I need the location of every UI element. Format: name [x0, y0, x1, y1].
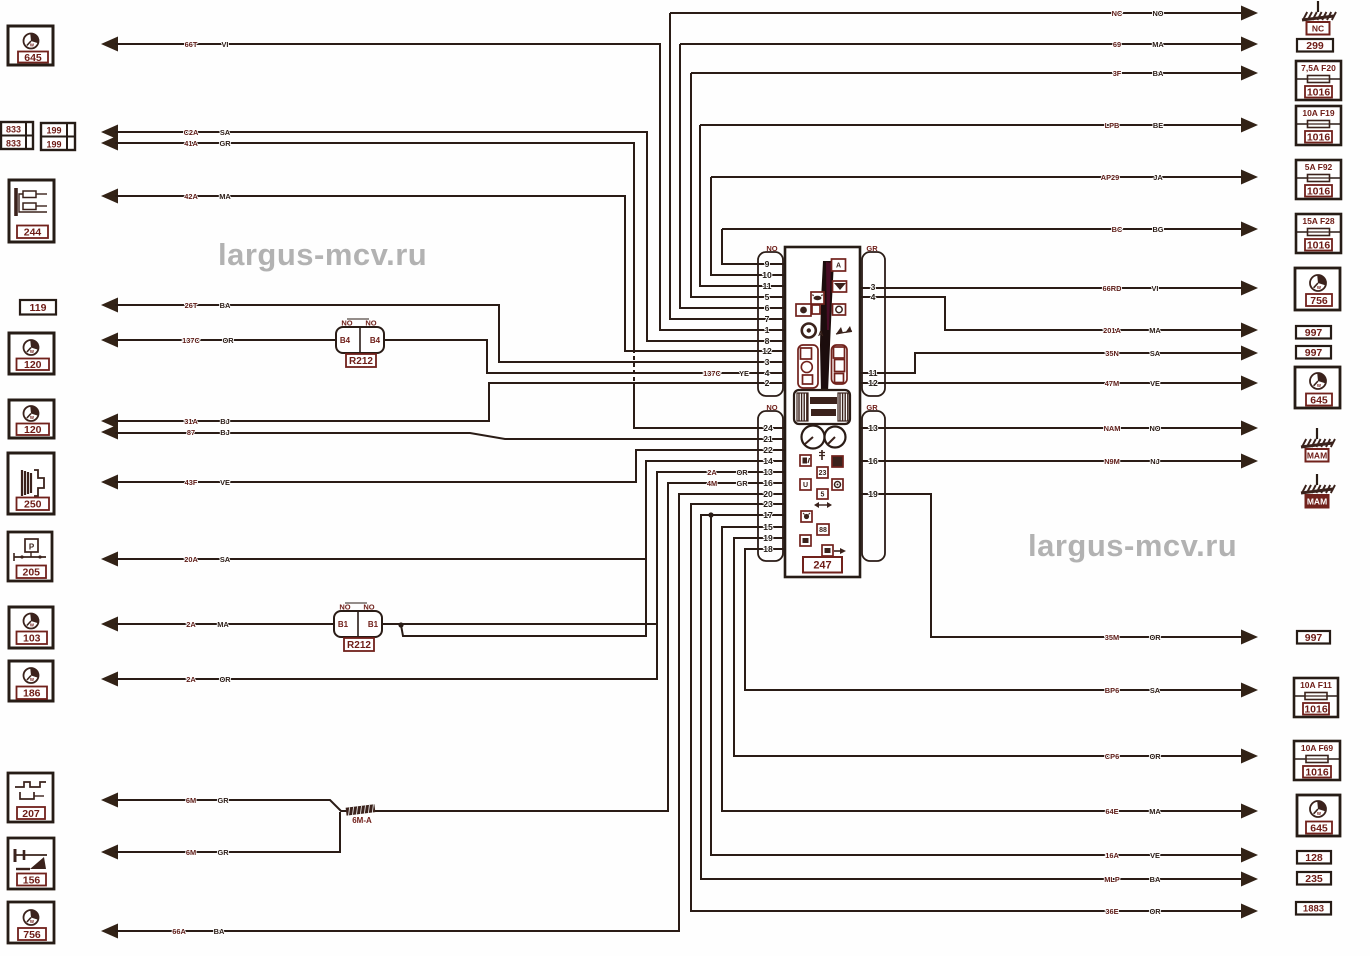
svg-text:GR: GR [217, 848, 229, 857]
svg-text:BJ: BJ [220, 428, 229, 437]
svg-text:3F: 3F [1113, 69, 1122, 78]
svg-text:12: 12 [868, 378, 878, 388]
svg-text:22: 22 [763, 445, 773, 455]
svg-text:137C: 137C [703, 369, 721, 378]
svg-text:4M: 4M [707, 479, 717, 488]
svg-text:1016: 1016 [1304, 704, 1328, 716]
svg-text:23: 23 [819, 470, 827, 477]
svg-text:SA: SA [1150, 349, 1161, 358]
svg-text:645: 645 [24, 52, 42, 64]
svg-text:199: 199 [46, 126, 61, 136]
svg-text:199: 199 [46, 140, 61, 150]
svg-text:BA: BA [214, 927, 225, 936]
svg-text:2A: 2A [186, 620, 196, 629]
svg-text:6M: 6M [186, 796, 196, 805]
svg-text:201A: 201A [1103, 326, 1121, 335]
svg-text:250: 250 [24, 499, 42, 511]
svg-text:833: 833 [6, 125, 21, 135]
svg-text:186: 186 [23, 688, 41, 700]
svg-text:128: 128 [1305, 852, 1323, 864]
svg-text:R212: R212 [347, 640, 371, 651]
svg-text:1883: 1883 [1303, 904, 1324, 915]
svg-text:5: 5 [821, 492, 825, 499]
svg-text:MAM: MAM [1307, 497, 1327, 507]
svg-text:1016: 1016 [1305, 767, 1329, 779]
svg-text:7: 7 [765, 314, 770, 324]
svg-text:R212: R212 [349, 356, 373, 367]
svg-text:A: A [836, 263, 841, 270]
svg-text:6M-A: 6M-A [352, 816, 372, 825]
svg-text:OR: OR [1149, 633, 1161, 642]
svg-text:1016: 1016 [1307, 132, 1331, 144]
svg-text:6M: 6M [186, 848, 196, 857]
svg-text:235: 235 [1305, 873, 1323, 885]
svg-text:19: 19 [868, 489, 878, 499]
svg-text:NO: NO [1149, 424, 1160, 433]
svg-text:1016: 1016 [1307, 186, 1331, 198]
svg-text:VE: VE [220, 478, 230, 487]
svg-text:9: 9 [765, 259, 770, 269]
svg-text:GR: GR [866, 244, 878, 253]
svg-text:w: w [29, 677, 34, 683]
svg-text:207: 207 [22, 808, 40, 820]
svg-text:8: 8 [765, 336, 770, 346]
svg-text:w: w [29, 919, 34, 925]
svg-text:BA: BA [220, 301, 231, 310]
svg-text:10: 10 [762, 270, 772, 280]
svg-text:119: 119 [30, 302, 47, 314]
svg-text:18: 18 [763, 544, 773, 554]
svg-text:NJ: NJ [1150, 457, 1159, 466]
svg-text:24: 24 [763, 423, 773, 433]
svg-text:NC: NC [1112, 9, 1123, 18]
svg-text:20: 20 [763, 489, 773, 499]
svg-text:B4: B4 [340, 336, 351, 345]
svg-text:OR: OR [736, 468, 748, 477]
svg-text:w: w [1316, 285, 1321, 291]
svg-text:VI: VI [1152, 284, 1159, 293]
svg-text:14: 14 [763, 456, 773, 466]
svg-text:AP29: AP29 [1101, 173, 1120, 182]
svg-text:299: 299 [1306, 40, 1324, 52]
svg-text:1016: 1016 [1307, 87, 1331, 99]
svg-text:88: 88 [819, 527, 827, 534]
svg-text:JA: JA [1153, 173, 1163, 182]
svg-text:47M: 47M [1105, 379, 1119, 388]
svg-text:997: 997 [1305, 327, 1323, 339]
svg-text:NC: NC [1312, 24, 1324, 34]
svg-text:11: 11 [762, 281, 771, 291]
svg-text:205: 205 [22, 567, 40, 579]
svg-text:1: 1 [765, 325, 770, 335]
svg-text:120: 120 [24, 359, 42, 371]
svg-text:7,5A F20: 7,5A F20 [1301, 63, 1336, 73]
svg-text:VE: VE [1150, 379, 1160, 388]
svg-text:MLP: MLP [1104, 875, 1120, 884]
svg-text:NAM: NAM [1104, 424, 1121, 433]
svg-text:2: 2 [765, 378, 770, 388]
svg-text:69: 69 [1113, 40, 1121, 49]
svg-text:w: w [1316, 811, 1321, 817]
svg-text:NO: NO [766, 403, 777, 412]
svg-text:66A: 66A [172, 927, 186, 936]
svg-text:BE: BE [1153, 121, 1163, 130]
svg-text:OR: OR [219, 675, 231, 684]
svg-text:66T: 66T [185, 40, 198, 49]
svg-text:MA: MA [217, 620, 229, 629]
svg-text:MA: MA [1152, 40, 1164, 49]
svg-text:B1: B1 [338, 620, 349, 629]
svg-text:C2A: C2A [184, 128, 199, 137]
svg-text:4: 4 [871, 292, 876, 302]
svg-text:645: 645 [1310, 394, 1328, 406]
svg-text:BG: BG [1152, 225, 1163, 234]
svg-text:SA: SA [220, 128, 231, 137]
svg-text:26T: 26T [185, 301, 198, 310]
svg-text:244: 244 [24, 227, 42, 239]
svg-text:N9M: N9M [1104, 457, 1120, 466]
svg-text:756: 756 [23, 929, 41, 941]
svg-text:w: w [1316, 383, 1321, 389]
svg-text:3: 3 [871, 282, 876, 292]
svg-text:156: 156 [23, 874, 41, 886]
svg-text:w: w [29, 623, 34, 629]
svg-text:645: 645 [1310, 822, 1328, 834]
svg-text:w: w [29, 43, 34, 49]
svg-text:A: A [818, 329, 824, 338]
svg-text:4: 4 [765, 368, 770, 378]
svg-text:BC: BC [1112, 225, 1123, 234]
svg-text:833: 833 [6, 139, 21, 149]
svg-text:VE: VE [1150, 851, 1160, 860]
svg-text:MAM: MAM [1307, 451, 1327, 461]
svg-text:31A: 31A [184, 417, 198, 426]
svg-text:16: 16 [763, 478, 773, 488]
svg-text:1016: 1016 [1307, 240, 1331, 252]
svg-text:103: 103 [23, 633, 41, 645]
svg-text:21: 21 [763, 434, 773, 444]
svg-text:YE: YE [739, 369, 749, 378]
svg-text:36E: 36E [1105, 907, 1118, 916]
svg-text:997: 997 [1305, 632, 1323, 644]
svg-text:OR: OR [222, 336, 234, 345]
svg-text:SA: SA [1150, 686, 1161, 695]
svg-text:2A: 2A [186, 675, 196, 684]
svg-text:MA: MA [1149, 326, 1161, 335]
svg-text:NO: NO [1152, 9, 1163, 18]
svg-text:CP6: CP6 [1105, 752, 1119, 761]
svg-text:GR: GR [217, 796, 229, 805]
svg-text:23: 23 [763, 499, 773, 509]
svg-text:NO: NO [365, 319, 376, 328]
svg-text:137C: 137C [182, 336, 200, 345]
svg-text:19: 19 [763, 533, 773, 543]
svg-text:11: 11 [868, 368, 877, 378]
svg-text:LPB: LPB [1105, 121, 1120, 130]
svg-text:87: 87 [187, 428, 195, 437]
svg-text:GR: GR [866, 403, 878, 412]
svg-text:41A: 41A [184, 139, 198, 148]
svg-text:997: 997 [1305, 347, 1323, 359]
svg-text:BA: BA [1153, 69, 1164, 78]
svg-text:12: 12 [762, 346, 772, 356]
svg-text:42A: 42A [184, 192, 198, 201]
svg-text:GR: GR [219, 139, 231, 148]
svg-text:VI: VI [222, 40, 229, 49]
svg-text:17: 17 [763, 510, 773, 520]
svg-text:NO: NO [341, 319, 352, 328]
svg-text:6: 6 [765, 303, 770, 313]
svg-text:NO: NO [766, 244, 777, 253]
svg-text:P: P [29, 543, 35, 552]
svg-text:13: 13 [763, 467, 773, 477]
svg-text:756: 756 [1310, 295, 1328, 307]
svg-text:OR: OR [1149, 907, 1161, 916]
svg-text:NO: NO [363, 603, 374, 612]
svg-text:43F: 43F [185, 478, 198, 487]
svg-text:SA: SA [220, 555, 231, 564]
svg-text:16: 16 [868, 456, 878, 466]
svg-text:16A: 16A [1105, 851, 1119, 860]
svg-text:GR: GR [736, 479, 748, 488]
svg-text:w: w [29, 349, 34, 355]
svg-text:largus-mcv.ru: largus-mcv.ru [1028, 528, 1237, 563]
svg-text:13: 13 [868, 423, 878, 433]
svg-text:120: 120 [24, 424, 42, 436]
svg-text:U: U [803, 482, 808, 489]
svg-text:10A F19: 10A F19 [1302, 108, 1335, 118]
svg-text:2A: 2A [707, 468, 717, 477]
svg-text:B4: B4 [370, 336, 381, 345]
svg-text:w: w [29, 415, 34, 421]
svg-text:15: 15 [763, 522, 773, 532]
svg-text:B1: B1 [368, 620, 379, 629]
svg-text:BA: BA [1150, 875, 1161, 884]
svg-text:35M: 35M [1105, 633, 1119, 642]
svg-text:3: 3 [765, 357, 770, 367]
svg-text:10A F11: 10A F11 [1300, 680, 1332, 690]
svg-text:MA: MA [219, 192, 231, 201]
svg-text:35N: 35N [1105, 349, 1119, 358]
svg-text:NO: NO [339, 603, 350, 612]
svg-text:OR: OR [1149, 752, 1161, 761]
svg-text:20A: 20A [184, 555, 198, 564]
svg-text:66RD: 66RD [1103, 284, 1123, 293]
svg-text:MA: MA [1149, 807, 1161, 816]
svg-text:64E: 64E [1105, 807, 1118, 816]
svg-text:5A F92: 5A F92 [1305, 162, 1333, 172]
svg-text:10A F69: 10A F69 [1301, 743, 1334, 753]
svg-text:5: 5 [765, 292, 770, 302]
svg-text:BP6: BP6 [1105, 686, 1119, 695]
svg-text:15A F28: 15A F28 [1302, 216, 1335, 226]
svg-text:BJ: BJ [220, 417, 229, 426]
svg-text:largus-mcv.ru: largus-mcv.ru [218, 237, 427, 272]
svg-text:247: 247 [813, 560, 831, 572]
